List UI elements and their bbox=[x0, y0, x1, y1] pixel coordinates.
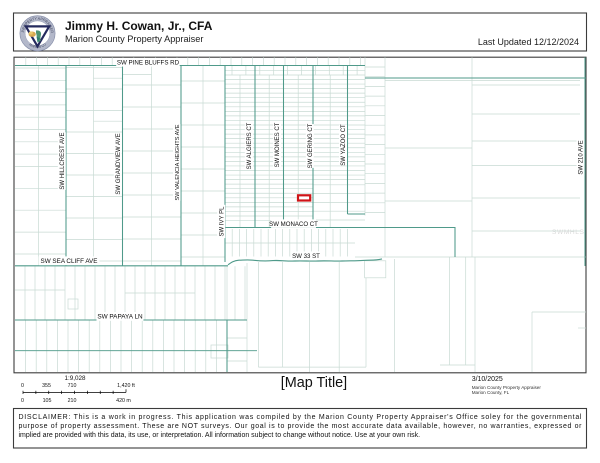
svg-text:3/10/2025: 3/10/2025 bbox=[472, 376, 503, 383]
svg-text:SW HILLCREST AVE: SW HILLCREST AVE bbox=[60, 132, 66, 189]
svg-text:420 m: 420 m bbox=[116, 398, 131, 404]
svg-text:SW MONACO CT: SW MONACO CT bbox=[269, 221, 318, 228]
svg-text:SWMHLS: SWMHLS bbox=[552, 229, 585, 236]
svg-text:Last Updated 12/12/2024: Last Updated 12/12/2024 bbox=[478, 37, 579, 47]
svg-text:DISCLAIMER: This is a work in: DISCLAIMER: This is a work in progress. … bbox=[19, 414, 582, 421]
svg-text:SW 33 ST: SW 33 ST bbox=[292, 253, 320, 260]
svg-text:1:9,028: 1:9,028 bbox=[64, 375, 86, 382]
svg-text:[Map Title]: [Map Title] bbox=[281, 375, 347, 391]
svg-text:0: 0 bbox=[21, 398, 24, 404]
svg-text:SW PINE BLUFFS RD: SW PINE BLUFFS RD bbox=[117, 60, 180, 67]
svg-text:SW YAZOO CT: SW YAZOO CT bbox=[341, 124, 347, 166]
svg-text:710: 710 bbox=[68, 383, 77, 389]
svg-text:Jimmy H. Cowan, Jr., CFA: Jimmy H. Cowan, Jr., CFA bbox=[65, 19, 213, 33]
svg-text:355: 355 bbox=[42, 383, 51, 389]
svg-text:Marion County Property Apprais: Marion County Property Appraiser bbox=[65, 34, 203, 44]
svg-text:SW VALENCIA HEIGHTS AVE: SW VALENCIA HEIGHTS AVE bbox=[175, 124, 181, 200]
svg-text:105: 105 bbox=[43, 398, 52, 404]
svg-text:SW IVY PL: SW IVY PL bbox=[219, 206, 225, 237]
svg-text:SW GRANDVIEW AVE: SW GRANDVIEW AVE bbox=[116, 133, 122, 194]
svg-text:SW MOINES CT: SW MOINES CT bbox=[275, 122, 281, 167]
svg-text:210: 210 bbox=[68, 398, 77, 404]
svg-text:SW ALGIERS CT: SW ALGIERS CT bbox=[247, 122, 253, 169]
svg-text:SW GERING CT: SW GERING CT bbox=[308, 123, 314, 168]
svg-text:SW 210 AVE: SW 210 AVE bbox=[579, 140, 585, 174]
svg-text:Marion County, FL: Marion County, FL bbox=[472, 390, 510, 395]
svg-text:implied are provided with this: implied are provided with this data, its… bbox=[19, 432, 421, 439]
svg-text:1,420 ft: 1,420 ft bbox=[117, 383, 135, 389]
svg-text:0: 0 bbox=[21, 383, 24, 389]
svg-text:SW SEA CLIFF AVE: SW SEA CLIFF AVE bbox=[41, 258, 98, 265]
svg-text:SW PAPAYA LN: SW PAPAYA LN bbox=[97, 314, 143, 321]
svg-text:purpose of property assessment: purpose of property assessment. These ar… bbox=[19, 423, 583, 430]
svg-text:Marion County Property Apprais: Marion County Property Appraiser bbox=[472, 385, 542, 390]
